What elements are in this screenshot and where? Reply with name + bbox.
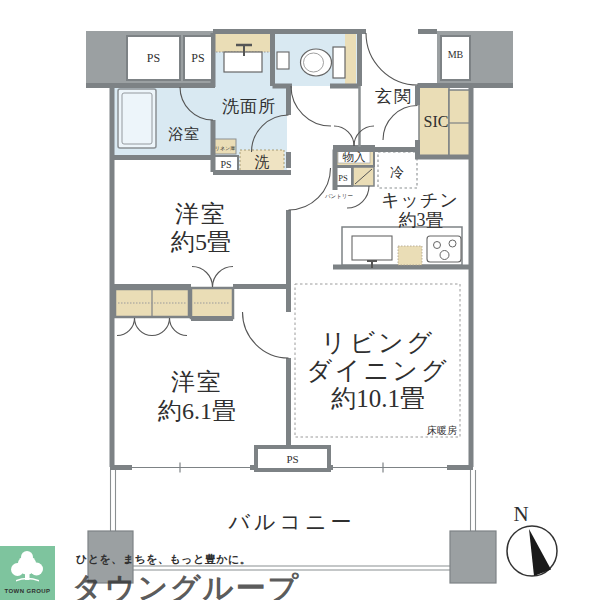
storage-door-arc-left [334, 126, 354, 146]
bedroom5-name-label: 洋室 [175, 201, 227, 227]
floor-plan-page: N PS PS MB 洗面所 浴室 リネン庫 PS 洗 玄関 SIC 物入 PS… [0, 0, 600, 600]
bedroom5-closet-arc-right [213, 267, 234, 288]
washer-label: 洗 [255, 154, 270, 170]
floor-plan-drawing: N PS PS MB 洗面所 浴室 リネン庫 PS 洗 玄関 SIC 物入 PS… [0, 0, 600, 600]
fridge-label: 冷 [390, 165, 404, 180]
pantry-label: パントリー [324, 193, 353, 199]
kitchen-name-label: キッチン [381, 190, 459, 210]
storage-door-arc-right [354, 126, 374, 146]
brand-company-name: タウングループ [72, 571, 300, 600]
entrance-door-arc [366, 33, 418, 85]
brand-logo-text: TOWN GROUP [5, 588, 51, 594]
bathtub-icon [118, 89, 156, 148]
entrance-label: 玄関 [375, 87, 413, 106]
brand-tagline: ひとを、まちを、もっと豊かに。 [76, 553, 251, 565]
sic-label: SIC [424, 113, 449, 130]
living-name2-label: ダイニング [307, 357, 450, 384]
bedroom5-closet-arc-left [192, 267, 213, 288]
bedroom5-size-label: 約5畳 [170, 229, 231, 255]
kitchen-sink-icon [352, 236, 392, 260]
sic-door-arc [383, 106, 418, 141]
ps-small-label: PS [338, 173, 348, 183]
bedroom5-door-arc [289, 168, 331, 210]
bathroom-label: 浴室 [168, 126, 200, 142]
bedroom61-name-label: 洋室 [171, 369, 223, 395]
bedroom61-closet-arc-3 [152, 318, 170, 336]
stove-icon [427, 236, 461, 262]
vanity-counter [213, 33, 270, 52]
bedroom61-closet-arc-2 [135, 318, 153, 336]
ps-top2-label: PS [191, 51, 204, 65]
toilet-cabinet [345, 33, 356, 84]
washroom-label: 洗面所 [222, 97, 276, 116]
bedroom61-door-arc [243, 312, 289, 358]
ps-bottom-label: PS [286, 453, 298, 465]
kitchen-size-label: 約3畳 [399, 210, 444, 230]
mb-label: MB [448, 49, 464, 60]
balcony-label: バルコニー [228, 510, 356, 534]
linen-label: リネン庫 [215, 145, 235, 151]
storage-label: 物入 [343, 151, 367, 163]
ps-top1-label: PS [147, 51, 160, 65]
bedroom61-closet-arc-1 [117, 318, 135, 336]
compass: N [507, 502, 557, 576]
compass-north-label: N [513, 502, 528, 526]
living-size-label: 約10.1畳 [330, 385, 425, 412]
brand-block: TOWN GROUP ひとを、まちを、もっと豊かに。 タウングループ [0, 546, 300, 600]
ps-mid-label: PS [220, 159, 231, 170]
toilet-door-arc [291, 86, 331, 126]
living-name1-label: リビング [321, 329, 435, 356]
bedroom61-closet-arc-4 [170, 318, 188, 336]
kitchen-counter [342, 227, 462, 268]
bedroom61-size-label: 約6.1畳 [157, 398, 236, 424]
floor-heating-label: 床暖房 [427, 425, 457, 436]
balcony-pillar-right [450, 531, 496, 583]
